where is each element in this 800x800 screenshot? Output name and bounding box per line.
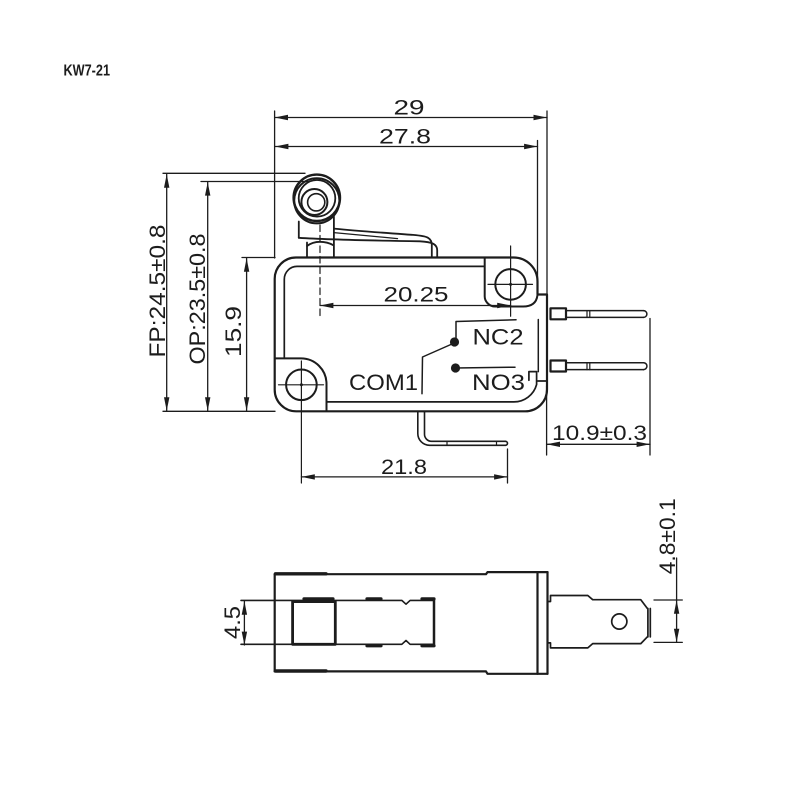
svg-text:20.25: 20.25 xyxy=(384,284,449,307)
svg-text:NC2: NC2 xyxy=(473,325,524,350)
svg-text:15.9: 15.9 xyxy=(221,306,246,357)
svg-text:21.8: 21.8 xyxy=(381,456,427,479)
svg-text:OP:23.5±0.8: OP:23.5±0.8 xyxy=(185,234,210,365)
svg-text:29: 29 xyxy=(394,97,425,120)
svg-text:COM1: COM1 xyxy=(349,370,418,395)
svg-text:4.8±0.1: 4.8±0.1 xyxy=(655,498,680,574)
svg-text:FP:24.5±0.8: FP:24.5±0.8 xyxy=(145,225,170,358)
svg-text:4.5: 4.5 xyxy=(220,606,245,639)
svg-text:27.8: 27.8 xyxy=(379,126,431,149)
svg-text:NO3: NO3 xyxy=(472,370,525,395)
svg-text:KW7-21: KW7-21 xyxy=(64,63,111,80)
svg-text:10.9±0.3: 10.9±0.3 xyxy=(552,422,647,445)
